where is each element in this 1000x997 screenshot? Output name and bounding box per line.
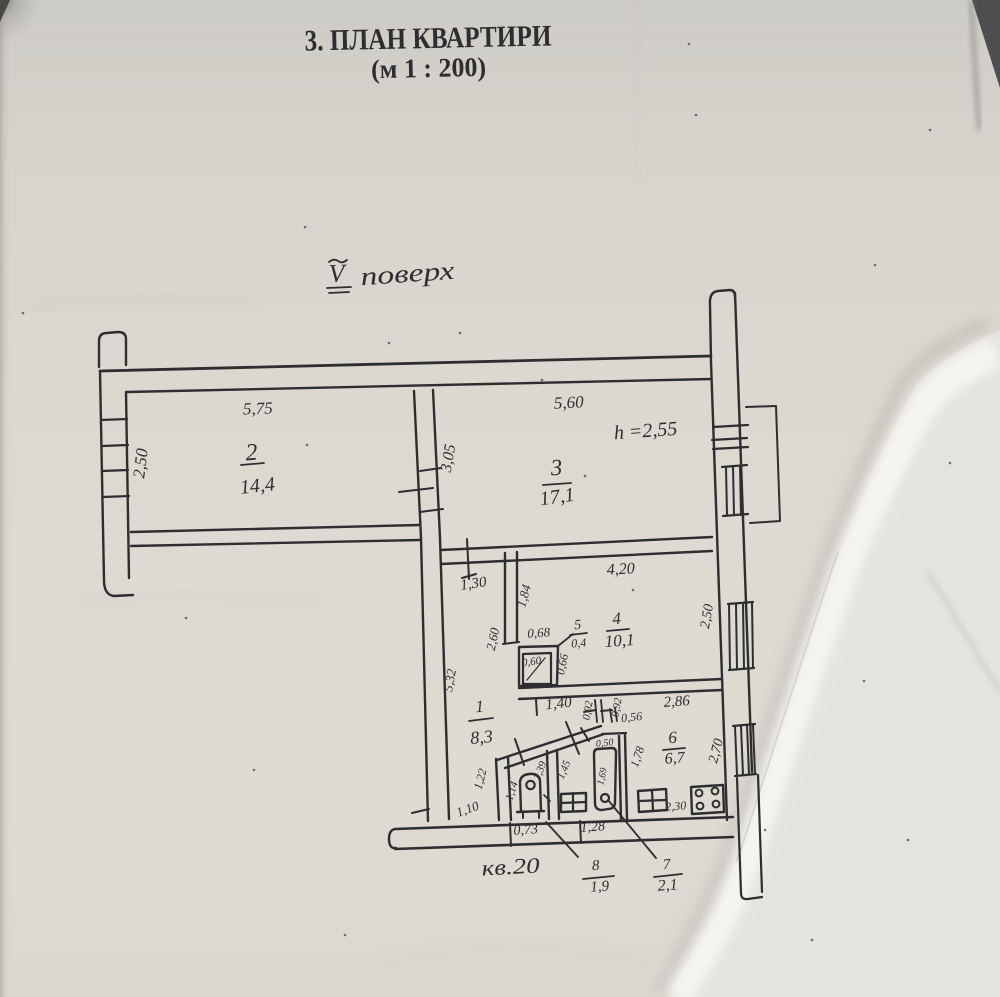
svg-text:0,73: 0,73 (513, 822, 538, 839)
svg-text:5: 5 (574, 618, 582, 633)
svg-text:1,9: 1,9 (590, 878, 610, 895)
svg-text:6,7: 6,7 (664, 749, 686, 767)
svg-text:2,30: 2,30 (665, 798, 687, 813)
svg-text:3. ПЛАН КВАРТИРИ: 3. ПЛАН КВАРТИРИ (304, 19, 552, 57)
svg-text:10,1: 10,1 (604, 630, 635, 651)
svg-text:3: 3 (549, 455, 563, 481)
svg-text:1: 1 (475, 697, 485, 717)
svg-text:2: 2 (245, 440, 259, 467)
svg-text:0,56: 0,56 (620, 709, 642, 725)
svg-text:(м 1 : 200): (м 1 : 200) (371, 52, 487, 84)
svg-text:1,40: 1,40 (545, 695, 573, 714)
svg-text:14,4: 14,4 (239, 473, 276, 499)
svg-text:кв.20: кв.20 (481, 853, 540, 881)
svg-text:0,4: 0,4 (571, 636, 587, 651)
svg-text:5,60: 5,60 (553, 392, 584, 413)
svg-text:8,3: 8,3 (469, 726, 493, 748)
svg-text:5,75: 5,75 (243, 398, 273, 418)
svg-text:2,86: 2,86 (663, 693, 691, 711)
svg-text:4,20: 4,20 (606, 560, 635, 578)
svg-text:0,50: 0,50 (595, 737, 614, 750)
svg-text:2,1: 2,1 (657, 876, 678, 894)
svg-text:1,28: 1,28 (580, 819, 605, 836)
svg-text:2,50: 2,50 (129, 447, 152, 479)
svg-text:0,68: 0,68 (527, 624, 551, 641)
svg-text:h =2,55: h =2,55 (613, 418, 678, 444)
